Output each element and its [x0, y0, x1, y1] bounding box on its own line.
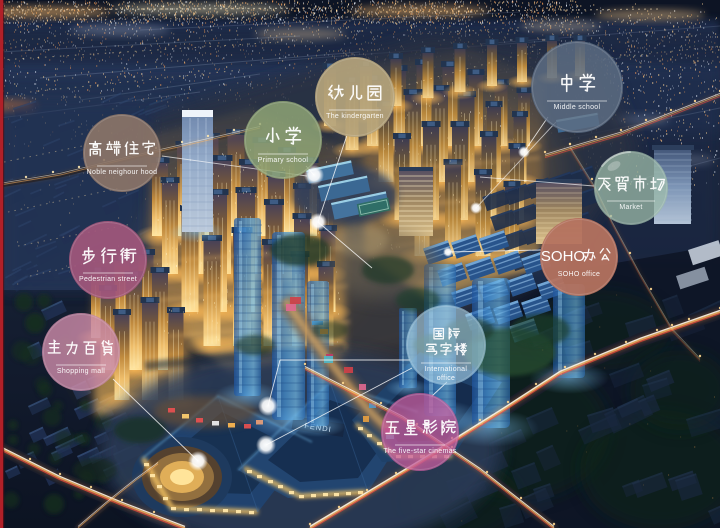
svg-text:SOHO: SOHO: [541, 248, 585, 265]
svg-text:SOHO office: SOHO office: [558, 271, 600, 278]
svg-text:Market: Market: [619, 204, 642, 211]
svg-text:International: International: [425, 366, 468, 373]
svg-text:The kindergarten: The kindergarten: [326, 113, 384, 120]
svg-text:The five-star cinemas: The five-star cinemas: [383, 448, 456, 455]
svg-text:Shopping mall: Shopping mall: [57, 368, 105, 375]
svg-text:Pedestrian street: Pedestrian street: [79, 276, 137, 283]
svg-text:Primary school: Primary school: [258, 157, 309, 164]
svg-text:office: office: [437, 375, 455, 382]
svg-text:Middle school: Middle school: [554, 104, 601, 111]
svg-text:Noble neighour hood: Noble neighour hood: [87, 169, 158, 176]
